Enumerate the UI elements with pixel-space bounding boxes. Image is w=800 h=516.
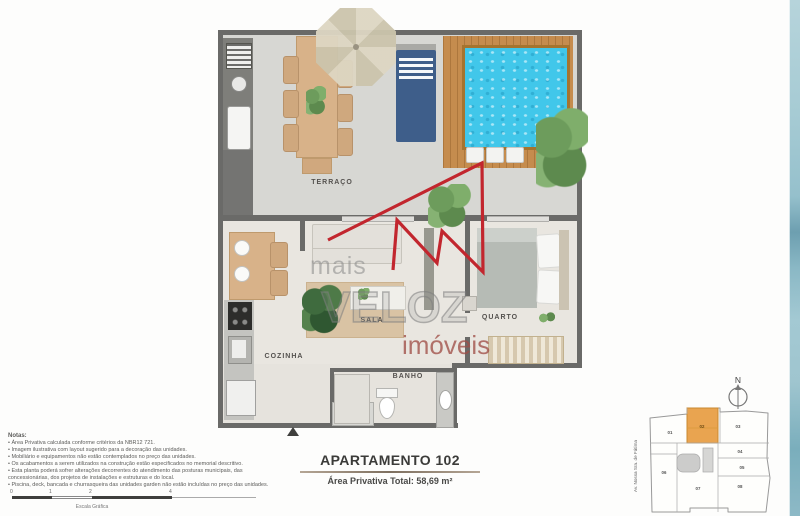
building-core-shaft: [703, 448, 713, 472]
outdoor-cabinet-door: [227, 106, 251, 150]
pool-mat: [506, 147, 524, 163]
terrace-plant-center: [428, 184, 472, 228]
compass-n-label: N: [735, 375, 741, 385]
bed-fold: [477, 228, 537, 242]
lounger-towel: [399, 58, 433, 80]
title-block: APARTAMENTO 102 Área Privativa Total: 58…: [300, 452, 480, 486]
scale-tick: 0: [10, 489, 13, 495]
title-rule: [300, 471, 480, 473]
kitchen-sink-basin: [232, 340, 246, 358]
refrigerator: [226, 380, 256, 416]
wall-top: [218, 30, 582, 35]
watermark-imoveis: imóveis: [402, 330, 490, 361]
scale-label: Escala Gráfica: [12, 504, 172, 510]
shower-tray: [334, 374, 370, 424]
terrace-chair: [283, 56, 299, 84]
apartment-title: APARTAMENTO 102: [300, 452, 480, 468]
unit-label: 08: [738, 484, 743, 489]
watermark-mais: mais: [310, 252, 367, 281]
notes-list: Área Privativa calculada conforme critér…: [8, 440, 280, 489]
pillow: [536, 269, 562, 304]
kitchen-chair: [270, 242, 288, 268]
right-edge-photo-band: [789, 0, 800, 516]
scale-tick: 4: [169, 489, 172, 495]
parasol-pole: [353, 44, 359, 50]
terrace-chair: [337, 128, 353, 156]
unit-label: 05: [740, 465, 745, 470]
outdoor-sink: [231, 76, 247, 92]
pool-mat: [466, 147, 484, 163]
pool-mat: [486, 147, 504, 163]
terrace-bench: [302, 158, 332, 174]
unit-label: 04: [738, 449, 743, 454]
outdoor-cabinet: [223, 150, 253, 215]
scale-segment: [52, 496, 92, 499]
scale-extension-line: [172, 497, 256, 498]
floor-plan-page: TERRAÇO SALA QUARTO COZINHA BANHO mais V…: [0, 0, 800, 516]
graphic-scale-bar: [12, 496, 172, 499]
terrace-chair: [337, 94, 353, 122]
wall-kitchen-stub: [300, 221, 305, 251]
note-item: Mobiliário e equipamentos não estão cont…: [8, 454, 280, 461]
unit-label: 06: [662, 470, 667, 475]
room-label-terraco: TERRAÇO: [300, 179, 364, 186]
scale-tick: 1: [49, 489, 52, 495]
plate: [234, 266, 250, 282]
unit-label: 01: [668, 430, 673, 435]
watermark-veloz: VELOZ: [321, 283, 468, 333]
unit-label: 07: [696, 486, 701, 491]
note-item: Os acabamentos a serem utilizados na con…: [8, 461, 280, 468]
bedroom-plant-deco: [538, 312, 556, 324]
unit-label: 02: [700, 424, 705, 429]
scale-segment: [92, 496, 172, 499]
unit-label: 03: [736, 424, 741, 429]
entry-door-marker: [287, 427, 299, 436]
bathroom-basin: [439, 390, 452, 410]
wall-right: [577, 30, 582, 368]
room-label-quarto: QUARTO: [475, 314, 525, 321]
sliding-door-quarto: [487, 216, 549, 222]
key-plan: N 01 02 03 04 05 06 07 08 Av. No: [628, 366, 790, 516]
kitchen-chair: [270, 270, 288, 296]
note-item: Imagem ilustrativa com layout sugerido p…: [8, 447, 280, 454]
scale-segment: [12, 496, 52, 499]
room-label-cozinha: COZINHA: [258, 353, 310, 360]
room-label-banho: BANHO: [388, 373, 428, 380]
terrace-chair: [283, 90, 299, 118]
sliding-door-sala: [342, 216, 414, 222]
private-area-total: Área Privativa Total: 58,69 m²: [300, 476, 480, 486]
notes-block: Notas: Área Privativa calculada conforme…: [8, 433, 280, 489]
street-label: Av. Nossa Sra. de Fátima: [633, 440, 638, 492]
plate: [234, 240, 250, 256]
sofa-seat-line: [312, 248, 400, 249]
note-item: Área Privativa calculada conforme critér…: [8, 440, 280, 447]
scale-tick: 2: [89, 489, 92, 495]
bed-headboard: [559, 230, 569, 310]
terrace-chair: [283, 124, 299, 152]
terrace-plant-right: [536, 108, 588, 192]
notes-heading: Notas:: [8, 433, 280, 439]
note-item: Esta planta poderá sofrer alterações dec…: [8, 468, 280, 482]
cooktop: [228, 302, 252, 330]
building-core-rounded: [677, 454, 700, 472]
barbecue-grill: [226, 43, 252, 69]
bedroom-rug: [488, 336, 564, 364]
table-centerpiece-plant: [306, 86, 326, 116]
